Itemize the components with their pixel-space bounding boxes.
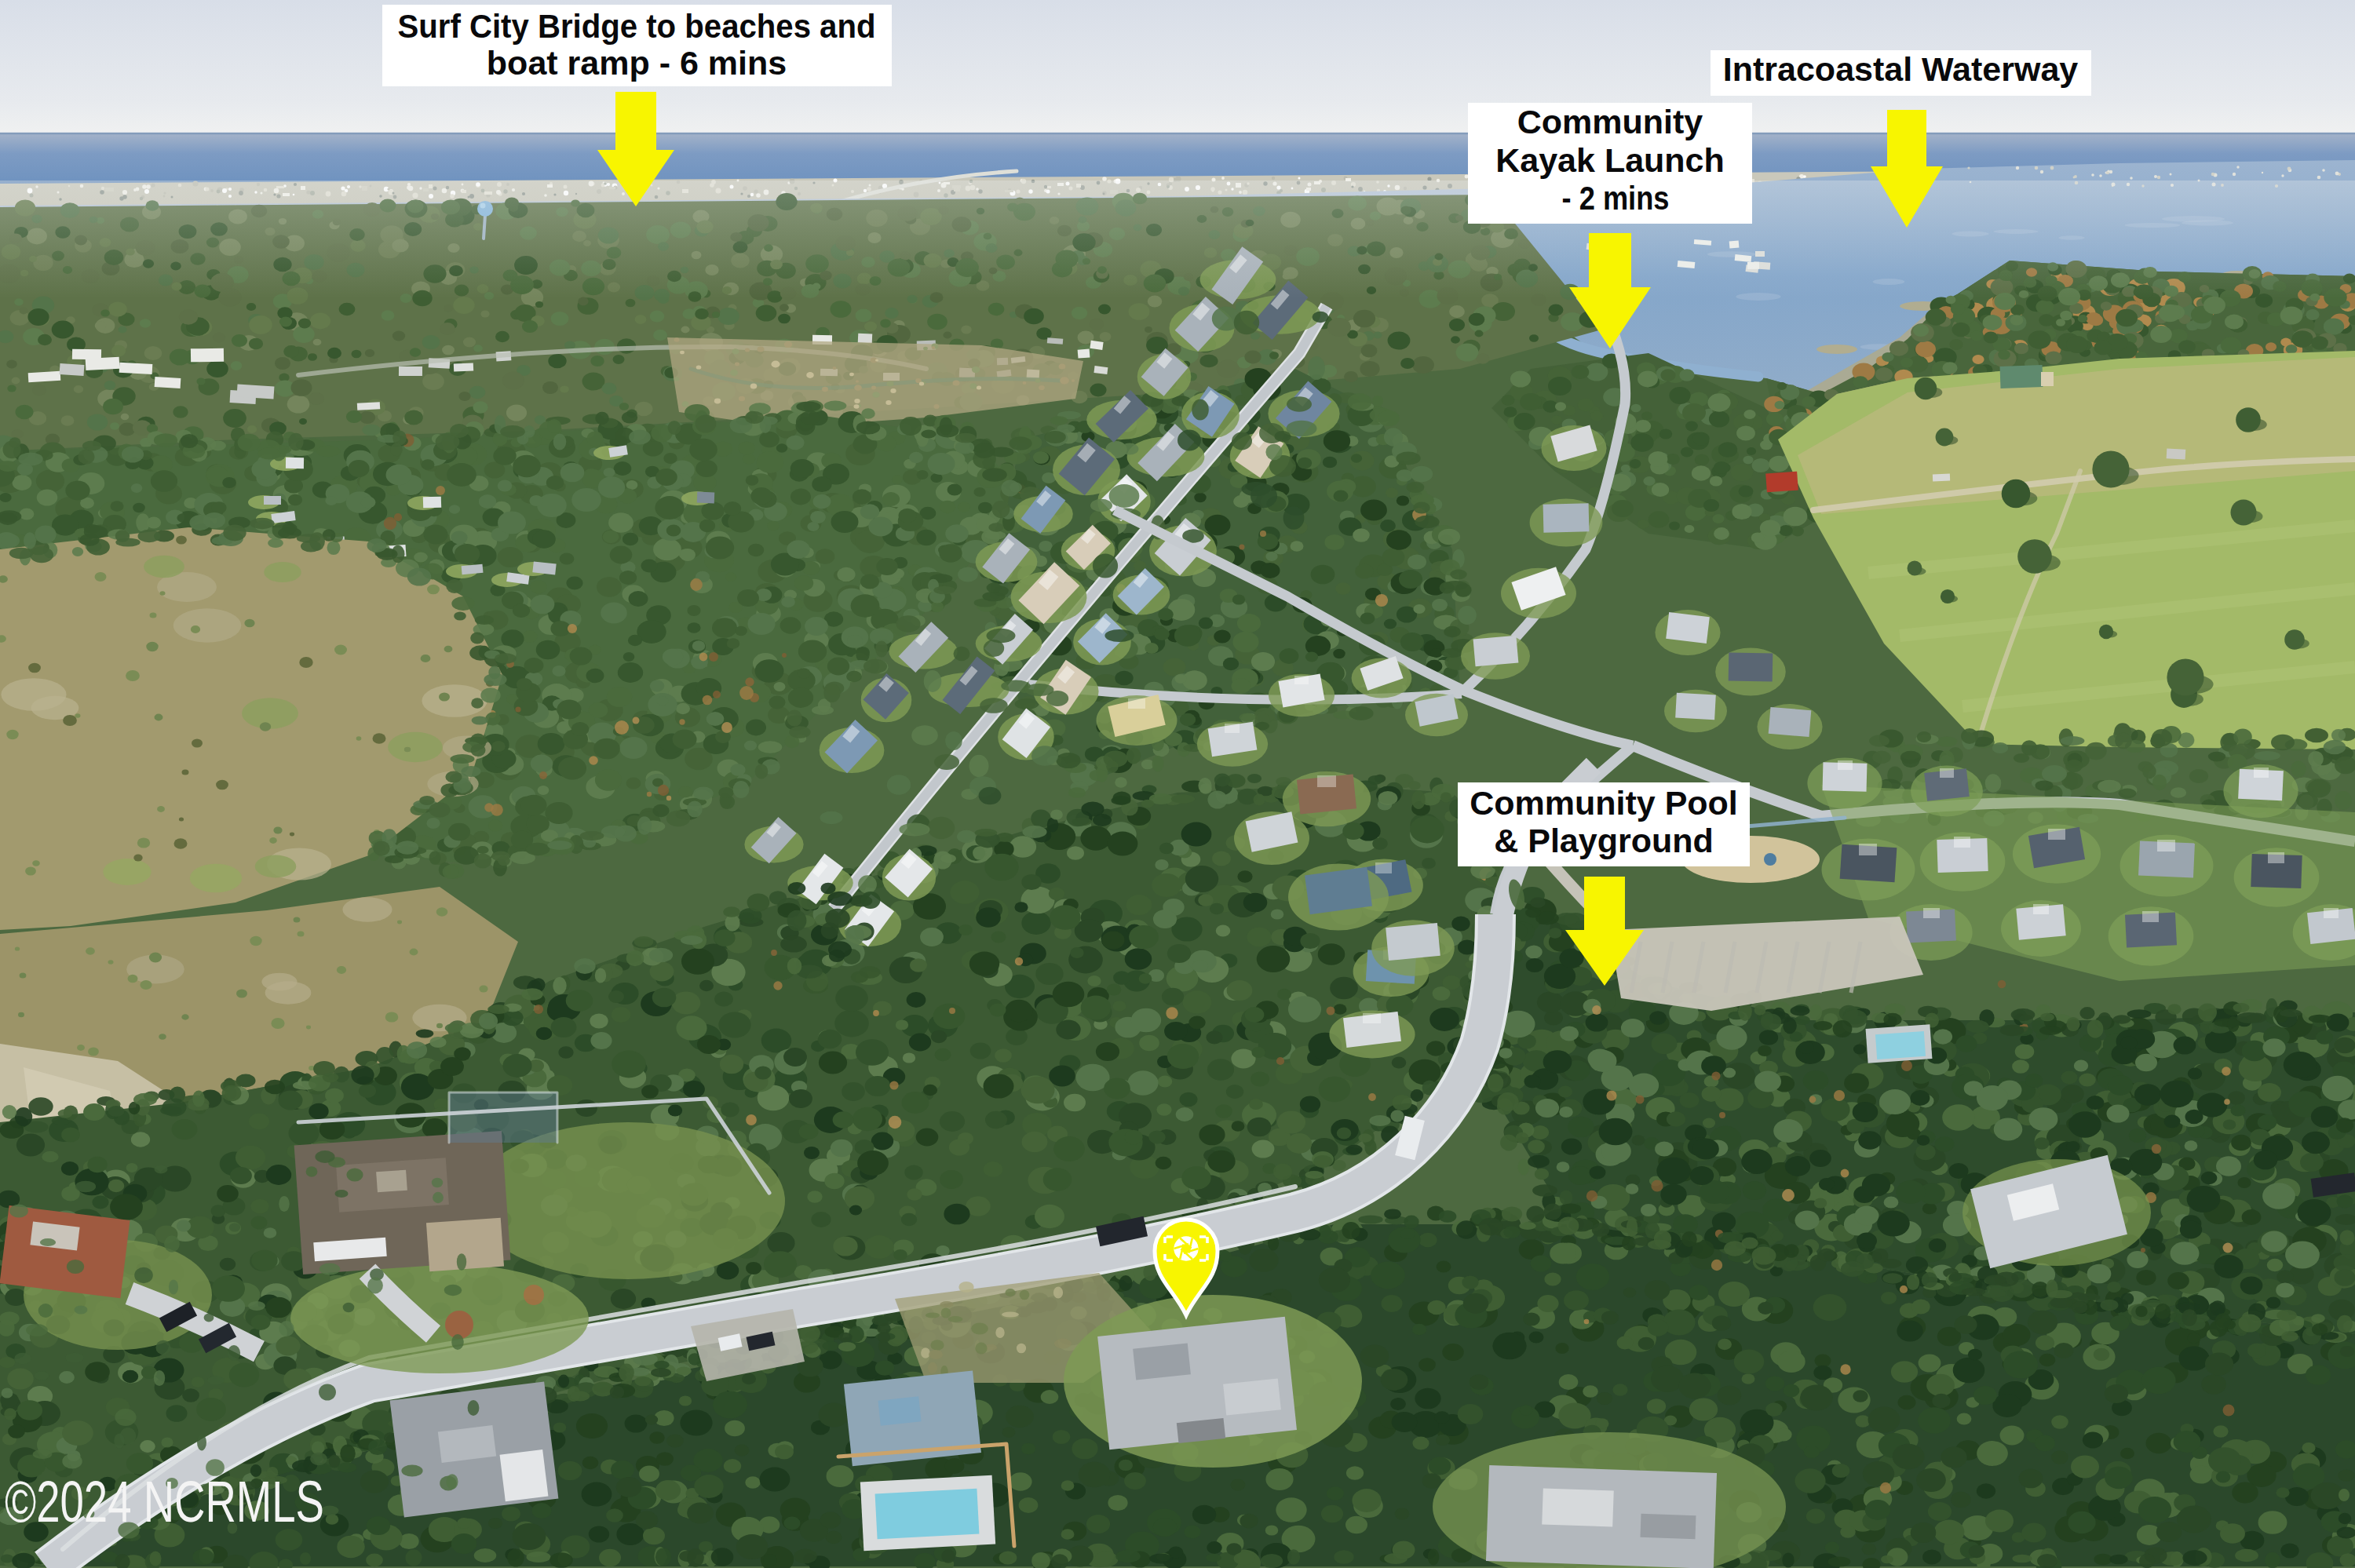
- svg-text:Intracoastal Waterway: Intracoastal Waterway: [1723, 50, 2079, 88]
- svg-text:Community: Community: [1517, 103, 1703, 140]
- svg-text:©2024 NCRMLS: ©2024 NCRMLS: [5, 1468, 324, 1534]
- svg-text:- 2 mins: - 2 mins: [1562, 179, 1670, 217]
- svg-text:Surf City Bridge to beaches an: Surf City Bridge to beaches and: [398, 7, 876, 45]
- svg-text:boat ramp - 6 mins: boat ramp - 6 mins: [487, 44, 787, 82]
- svg-text:& Playground: & Playground: [1494, 822, 1714, 859]
- svg-text:Kayak Launch: Kayak Launch: [1495, 141, 1725, 179]
- svg-text:Community Pool: Community Pool: [1470, 784, 1738, 822]
